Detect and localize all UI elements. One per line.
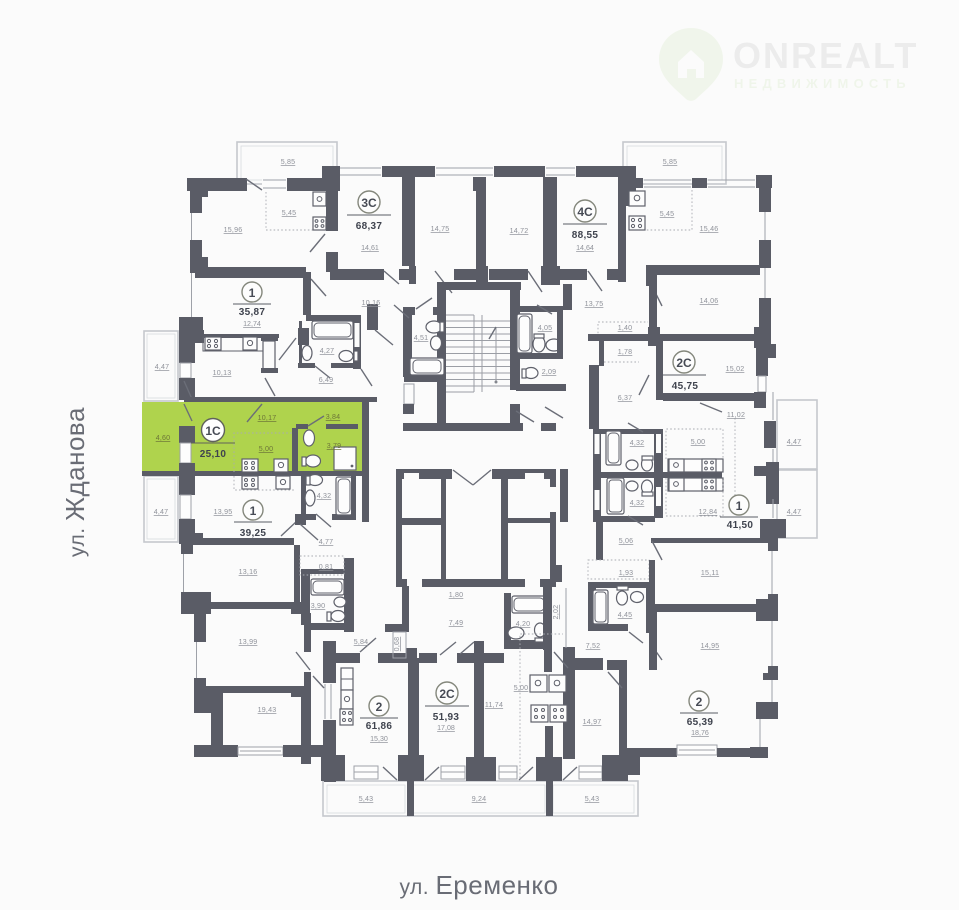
svg-text:4,32: 4,32 (630, 499, 645, 507)
svg-text:4,32: 4,32 (317, 492, 332, 500)
svg-text:0,81: 0,81 (319, 563, 334, 571)
svg-text:1: 1 (249, 286, 256, 300)
svg-text:5,85: 5,85 (663, 158, 678, 166)
svg-text:1,78: 1,78 (618, 348, 633, 356)
svg-text:1С: 1С (205, 424, 221, 438)
svg-text:35,87: 35,87 (239, 307, 266, 318)
svg-text:2: 2 (376, 700, 383, 714)
svg-text:2С: 2С (676, 356, 692, 370)
svg-text:65,39: 65,39 (687, 717, 714, 728)
svg-text:5,06: 5,06 (619, 537, 634, 545)
svg-text:14,97: 14,97 (583, 718, 602, 726)
svg-text:45,75: 45,75 (672, 381, 699, 392)
svg-text:5,43: 5,43 (585, 795, 600, 803)
svg-text:10,16: 10,16 (362, 299, 381, 307)
svg-text:4,05: 4,05 (538, 324, 553, 332)
svg-text:1: 1 (250, 504, 257, 518)
svg-text:17,08: 17,08 (437, 724, 455, 732)
svg-text:9,24: 9,24 (472, 795, 487, 803)
svg-text:12,74: 12,74 (243, 320, 261, 328)
svg-text:15,11: 15,11 (701, 569, 719, 577)
svg-text:15,02: 15,02 (726, 365, 745, 373)
svg-text:51,93: 51,93 (433, 712, 460, 723)
svg-text:0,68: 0,68 (393, 637, 401, 652)
svg-text:4,47: 4,47 (154, 508, 169, 516)
svg-text:2С: 2С (439, 687, 455, 701)
svg-text:1: 1 (736, 499, 743, 513)
svg-text:4,45: 4,45 (618, 611, 633, 619)
svg-text:6,37: 6,37 (618, 394, 633, 402)
svg-text:2,09: 2,09 (542, 368, 557, 376)
svg-text:61,86: 61,86 (366, 721, 393, 732)
svg-text:3,79: 3,79 (327, 442, 342, 450)
svg-text:5,45: 5,45 (660, 210, 675, 218)
svg-text:11,02: 11,02 (727, 411, 745, 419)
svg-text:4,77: 4,77 (319, 538, 334, 546)
svg-text:4,27: 4,27 (320, 347, 335, 355)
svg-text:12,84: 12,84 (699, 508, 718, 516)
svg-text:14,72: 14,72 (510, 227, 529, 235)
svg-text:13,75: 13,75 (585, 300, 604, 308)
svg-text:88,55: 88,55 (572, 230, 599, 241)
svg-text:13,95: 13,95 (214, 508, 233, 516)
svg-text:14,06: 14,06 (700, 297, 719, 305)
svg-text:5,00: 5,00 (259, 445, 274, 453)
svg-text:НЕДВИЖИМОСТЬ: НЕДВИЖИМОСТЬ (734, 76, 911, 91)
svg-text:5,84: 5,84 (354, 638, 369, 646)
svg-text:15,46: 15,46 (700, 225, 719, 233)
svg-text:13,16: 13,16 (239, 568, 258, 576)
svg-text:ONREALT: ONREALT (733, 35, 918, 76)
svg-text:4,20: 4,20 (516, 620, 531, 628)
svg-text:19,43: 19,43 (258, 706, 277, 714)
svg-text:10,17: 10,17 (258, 414, 277, 422)
svg-text:14,75: 14,75 (431, 225, 450, 233)
svg-text:4,60: 4,60 (156, 434, 171, 442)
svg-text:1,80: 1,80 (449, 591, 464, 599)
svg-text:15,96: 15,96 (224, 226, 243, 234)
svg-text:15,30: 15,30 (370, 735, 388, 743)
svg-text:14,64: 14,64 (576, 244, 594, 252)
svg-text:7,52: 7,52 (586, 642, 601, 650)
svg-text:2,02: 2,02 (552, 605, 560, 620)
svg-text:18,76: 18,76 (691, 729, 709, 737)
svg-text:5,85: 5,85 (281, 158, 296, 166)
svg-text:5,00: 5,00 (514, 684, 529, 692)
svg-text:68,37: 68,37 (356, 221, 383, 232)
svg-text:41,50: 41,50 (727, 520, 754, 531)
svg-text:10,13: 10,13 (213, 369, 232, 377)
svg-text:7,49: 7,49 (449, 619, 464, 627)
svg-text:6,49: 6,49 (319, 376, 334, 384)
svg-text:3,90: 3,90 (311, 602, 326, 610)
svg-text:3,84: 3,84 (326, 413, 341, 421)
svg-text:5,43: 5,43 (359, 795, 374, 803)
svg-text:5,45: 5,45 (282, 209, 297, 217)
svg-text:4,47: 4,47 (155, 363, 170, 371)
svg-text:3С: 3С (361, 196, 377, 210)
svg-text:4,47: 4,47 (787, 438, 802, 446)
svg-text:39,25: 39,25 (240, 528, 267, 539)
svg-text:4,32: 4,32 (630, 439, 645, 447)
svg-text:11,74: 11,74 (485, 701, 503, 709)
svg-text:14,95: 14,95 (701, 642, 720, 650)
svg-text:14,61: 14,61 (361, 244, 379, 252)
svg-text:5,00: 5,00 (691, 438, 706, 446)
svg-text:1,40: 1,40 (618, 324, 633, 332)
svg-text:4,51: 4,51 (414, 334, 429, 342)
svg-text:13,99: 13,99 (239, 638, 258, 646)
svg-text:1,93: 1,93 (619, 569, 634, 577)
svg-text:2: 2 (696, 695, 703, 709)
svg-text:25,10: 25,10 (200, 449, 227, 460)
svg-text:4С: 4С (577, 205, 593, 219)
svg-text:4,47: 4,47 (787, 508, 802, 516)
